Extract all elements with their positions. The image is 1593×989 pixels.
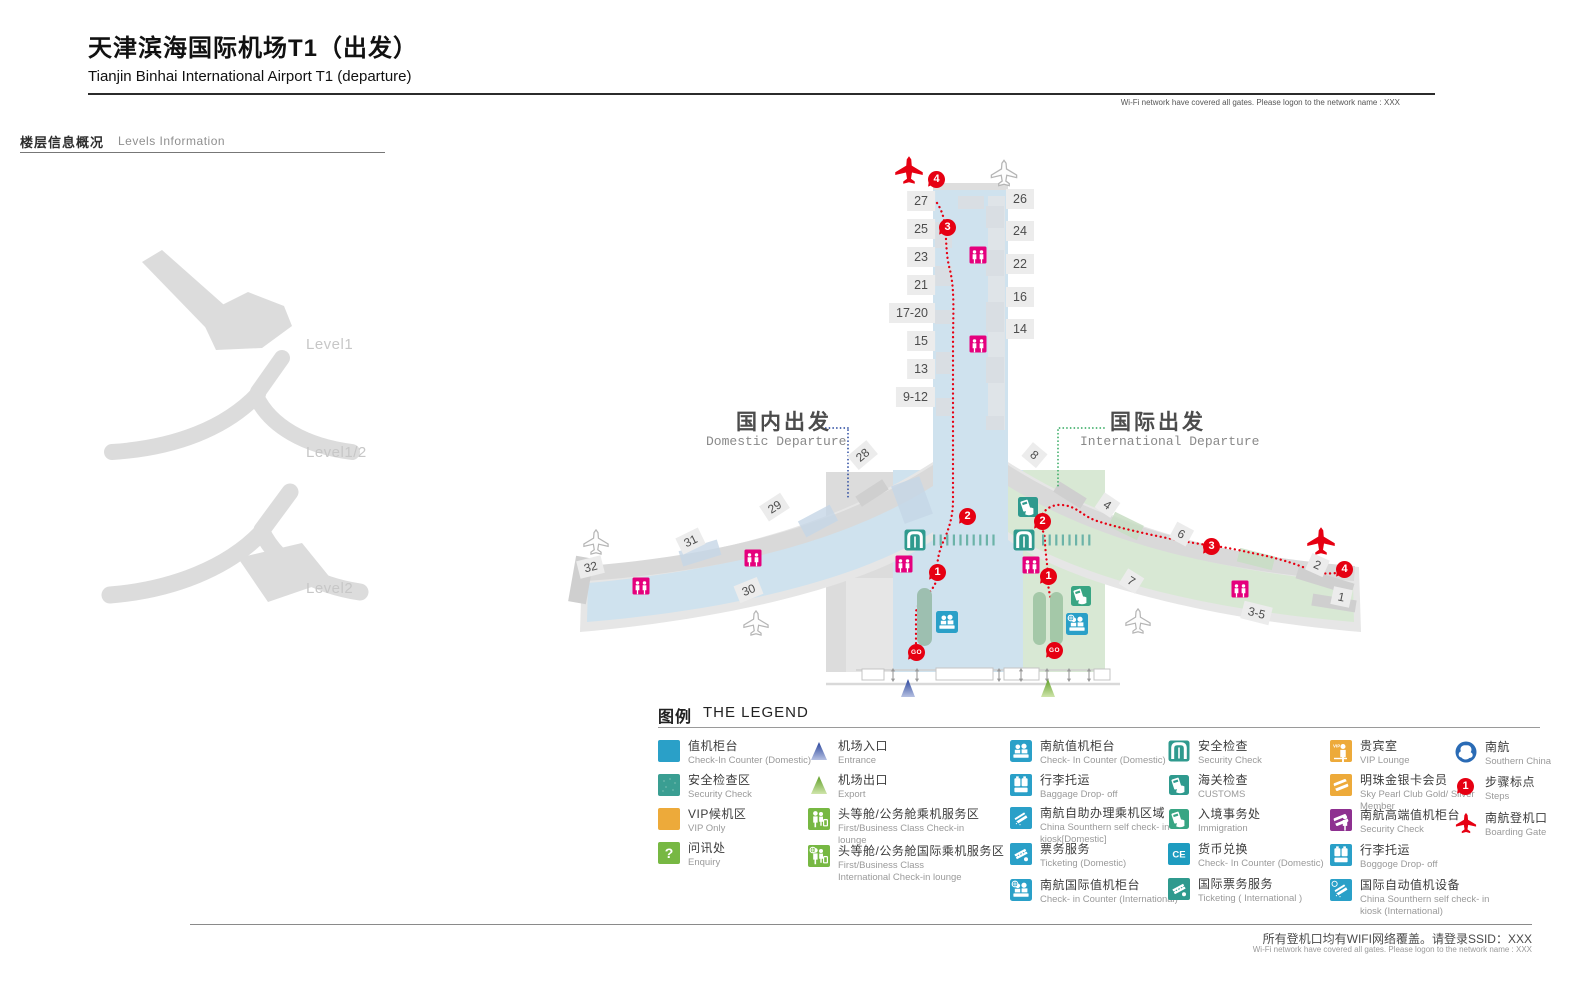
svg-text:CE: CE <box>1172 850 1185 861</box>
legend-item: 南航值机柜台Check- In Counter (Domestic) <box>1010 740 1166 767</box>
legend-item: 南航Southern China <box>1455 741 1551 768</box>
sky-pearl-card-icon <box>1330 774 1352 796</box>
export-arrow-icon <box>1041 679 1055 697</box>
level-silhouettes <box>110 250 360 602</box>
svg-text:VIP: VIP <box>1333 744 1340 749</box>
vip-lounge-icon: VIP <box>1330 740 1352 762</box>
legend-item: CE 货币兑换Check- In Counter (Domestic) <box>1168 843 1324 870</box>
gate-label-30: 30 <box>734 577 764 603</box>
security-check-gate-icon <box>1168 740 1190 762</box>
step-marker-3-intl: 3 <box>1203 538 1220 555</box>
gate-label-4: 4 <box>1095 492 1121 517</box>
page-title: 天津滨海国际机场T1（出发） <box>88 28 418 63</box>
csair-logo-icon <box>1455 741 1477 763</box>
level2-label: Level2 <box>306 580 353 597</box>
grey-plane-icon <box>744 611 768 635</box>
levels-rule <box>20 152 385 153</box>
export-icon <box>808 774 830 796</box>
legend-item: 入境事务处Immigration <box>1168 808 1261 835</box>
gate-label-8: 8 <box>1021 442 1047 468</box>
security-check-icon <box>1014 530 1035 551</box>
toilet-icon <box>745 550 762 567</box>
ticketing-domestic-icon <box>1010 843 1032 865</box>
domestic-departure-label-en: Domestic Departure <box>706 434 846 449</box>
domestic-departure-label-zh: 国内出发 <box>736 406 832 436</box>
route-international <box>1040 505 1340 648</box>
legend-item: 南航登机口Boarding Gate <box>1455 812 1548 839</box>
legend-item: 1 步骤标点Steps <box>1455 776 1535 803</box>
gate-label-1: 1 <box>1330 586 1352 607</box>
legend-item: 南航国际值机柜台Check- in Counter (International… <box>1010 879 1178 906</box>
footer-rule <box>190 924 1532 925</box>
legend-item: 安全检查Security Check <box>1168 740 1262 767</box>
gate-label-29: 29 <box>759 493 790 522</box>
levels-heading-zh: 楼层信息概况 <box>20 132 104 151</box>
toilet-icon <box>633 578 650 595</box>
baggage-dropoff-icon <box>1010 774 1032 796</box>
legend-item: 国际票务服务Ticketing ( International ) <box>1168 878 1302 905</box>
gate-label-25: 25 <box>907 219 935 239</box>
checkin-counter-international-icon <box>1066 613 1088 635</box>
intl-self-checkin-icon <box>1330 879 1352 901</box>
legend-item: 机场出口Export <box>808 774 888 801</box>
gate-label-9-12: 9-12 <box>896 387 935 407</box>
gate-label-16: 16 <box>1006 287 1034 307</box>
door-rects <box>862 668 1110 680</box>
grey-plane-icon <box>991 160 1016 185</box>
gate-label-7: 7 <box>1119 568 1144 593</box>
first-business-lounge-icon <box>808 808 830 830</box>
entrance-arrow-icon <box>901 679 915 697</box>
baggage-dropoff-icon-2 <box>1330 844 1352 866</box>
toilet-icon <box>970 336 987 353</box>
go-marker-domestic: GO <box>908 644 925 661</box>
currency-exchange-icon: CE <box>1168 843 1190 865</box>
gate-label-13: 13 <box>907 359 935 379</box>
legend-item: 国际自动值机设备China Sounthern self check- in k… <box>1330 879 1500 917</box>
red-plane-icon <box>1307 527 1335 555</box>
legend-rule <box>658 727 1540 728</box>
gate-label-15: 15 <box>907 331 935 351</box>
legend-item: VIP 贵宾室VIP Lounge <box>1330 740 1409 767</box>
legend-heading-en: THE LEGEND <box>703 704 809 721</box>
boarding-gate-plane-icon <box>1455 812 1477 834</box>
toilet-icon <box>1023 557 1040 574</box>
legend-item: 值机柜台Check-In Counter (Domestic) <box>658 740 811 767</box>
toilet-icon <box>970 247 987 264</box>
customs-legend-icon <box>1168 774 1190 796</box>
legend-item: 南航高端值机柜台Security Check <box>1330 809 1460 836</box>
first-business-intl-lounge-icon <box>808 845 830 867</box>
grey-plane-icon <box>1126 609 1150 633</box>
gate-label-6: 6 <box>1169 522 1194 547</box>
checkin-area-icon <box>658 740 680 762</box>
legend-item: 安全检查区Security Check <box>658 774 752 801</box>
route-domestic <box>916 203 953 648</box>
toilet-icon <box>896 556 913 573</box>
escalator-pills <box>917 588 1063 646</box>
gate-label-27: 27 <box>907 191 935 211</box>
step-marker-4: 4 <box>928 171 945 188</box>
international-departure-label-zh: 国际出发 <box>1110 406 1206 436</box>
gate-label-2: 2 <box>1305 553 1329 577</box>
steps-marker-icon: 1 <box>1455 776 1477 798</box>
self-checkin-kiosk-icon <box>1010 807 1032 829</box>
gate-label-22: 22 <box>1006 254 1034 274</box>
gate-label-24: 24 <box>1006 221 1034 241</box>
legend-item: 南航自助办理乘机区域China Sounthern self check- in… <box>1010 807 1180 845</box>
level1-2-label: Level1/2 <box>306 444 367 461</box>
step-marker-1-intl: 1 <box>1040 568 1057 585</box>
legend-item: 海关检查CUSTOMS <box>1168 774 1248 801</box>
step-marker-4-intl: 4 <box>1336 561 1353 578</box>
international-departure-label-en: International Departure <box>1080 434 1259 449</box>
step-marker-2-intl: 2 <box>1034 513 1051 530</box>
csair-checkin-icon <box>1010 740 1032 762</box>
gate-label-14: 14 <box>1006 319 1034 339</box>
csair-intl-checkin-icon <box>1010 879 1032 901</box>
legend-item: 行李托运Boggoge Drop- off <box>1330 844 1437 871</box>
gate-label-23: 23 <box>907 247 935 267</box>
immigration-icon <box>1071 586 1091 606</box>
red-plane-icon <box>895 156 923 184</box>
boarding-planes <box>584 156 1335 635</box>
checkin-counter-icon <box>936 611 958 633</box>
premium-checkin-icon <box>1330 809 1352 831</box>
legend-item: 机场入口Entrance <box>808 740 888 767</box>
step-marker-1: 1 <box>929 564 946 581</box>
legend-item: 头等舱/公务舱乘机服务区First/Business Class Check-i… <box>808 808 979 846</box>
gate-label-3-5: 3-5 <box>1240 601 1273 626</box>
wifi-note-top: Wi-Fi network have covered all gates. Pl… <box>1040 98 1400 107</box>
legend-item: 票务服务Ticketing (Domestic) <box>1010 843 1126 870</box>
page-subtitle: Tianjin Binhai International Airport T1 … <box>88 68 412 85</box>
footer-note-en: Wi-Fi network have covered all gates. Pl… <box>1032 945 1532 954</box>
legend-item: ? 问讯处Enquiry <box>658 842 726 869</box>
grey-plane-icon <box>584 530 608 554</box>
step-marker-3: 3 <box>939 219 956 236</box>
legend-item: 头等舱/公务舱国际乘机服务区First/Business Class Inter… <box>808 845 1004 883</box>
gate-label-17-20: 17-20 <box>889 303 935 323</box>
immigration-legend-icon <box>1168 808 1190 830</box>
customs-icon <box>1018 497 1038 517</box>
legend-item: 行李托运Baggage Drop- off <box>1010 774 1117 801</box>
vip-area-icon <box>658 808 680 830</box>
door-arrows <box>891 668 1091 682</box>
entrance-icon <box>808 740 830 762</box>
level1-label: Level1 <box>306 336 353 353</box>
legend-heading-zh: 图例 <box>658 703 692 727</box>
gate-label-26: 26 <box>1006 189 1034 209</box>
toilet-icon <box>1232 581 1249 598</box>
ticketing-international-icon <box>1168 878 1190 900</box>
security-check-icon <box>905 530 926 551</box>
levels-heading-en: Levels Information <box>118 134 225 148</box>
go-marker-international: GO <box>1046 642 1063 659</box>
gate-label-21: 21 <box>907 275 935 295</box>
gate-label-28: 28 <box>847 440 878 470</box>
gate-label-31: 31 <box>675 527 706 554</box>
security-area-icon <box>658 774 680 796</box>
airport-map-page: 天津滨海国际机场T1（出发） Tianjin Binhai Internatio… <box>0 0 1593 989</box>
legend-item: VIP候机区VIP Only <box>658 808 746 835</box>
terminal-map-graphic <box>0 0 1593 989</box>
header-rule <box>88 93 1435 95</box>
step-marker-2: 2 <box>959 508 976 525</box>
gate-label-32: 32 <box>576 555 605 579</box>
enquiry-icon: ? <box>658 842 680 864</box>
svg-text:?: ? <box>665 845 674 861</box>
